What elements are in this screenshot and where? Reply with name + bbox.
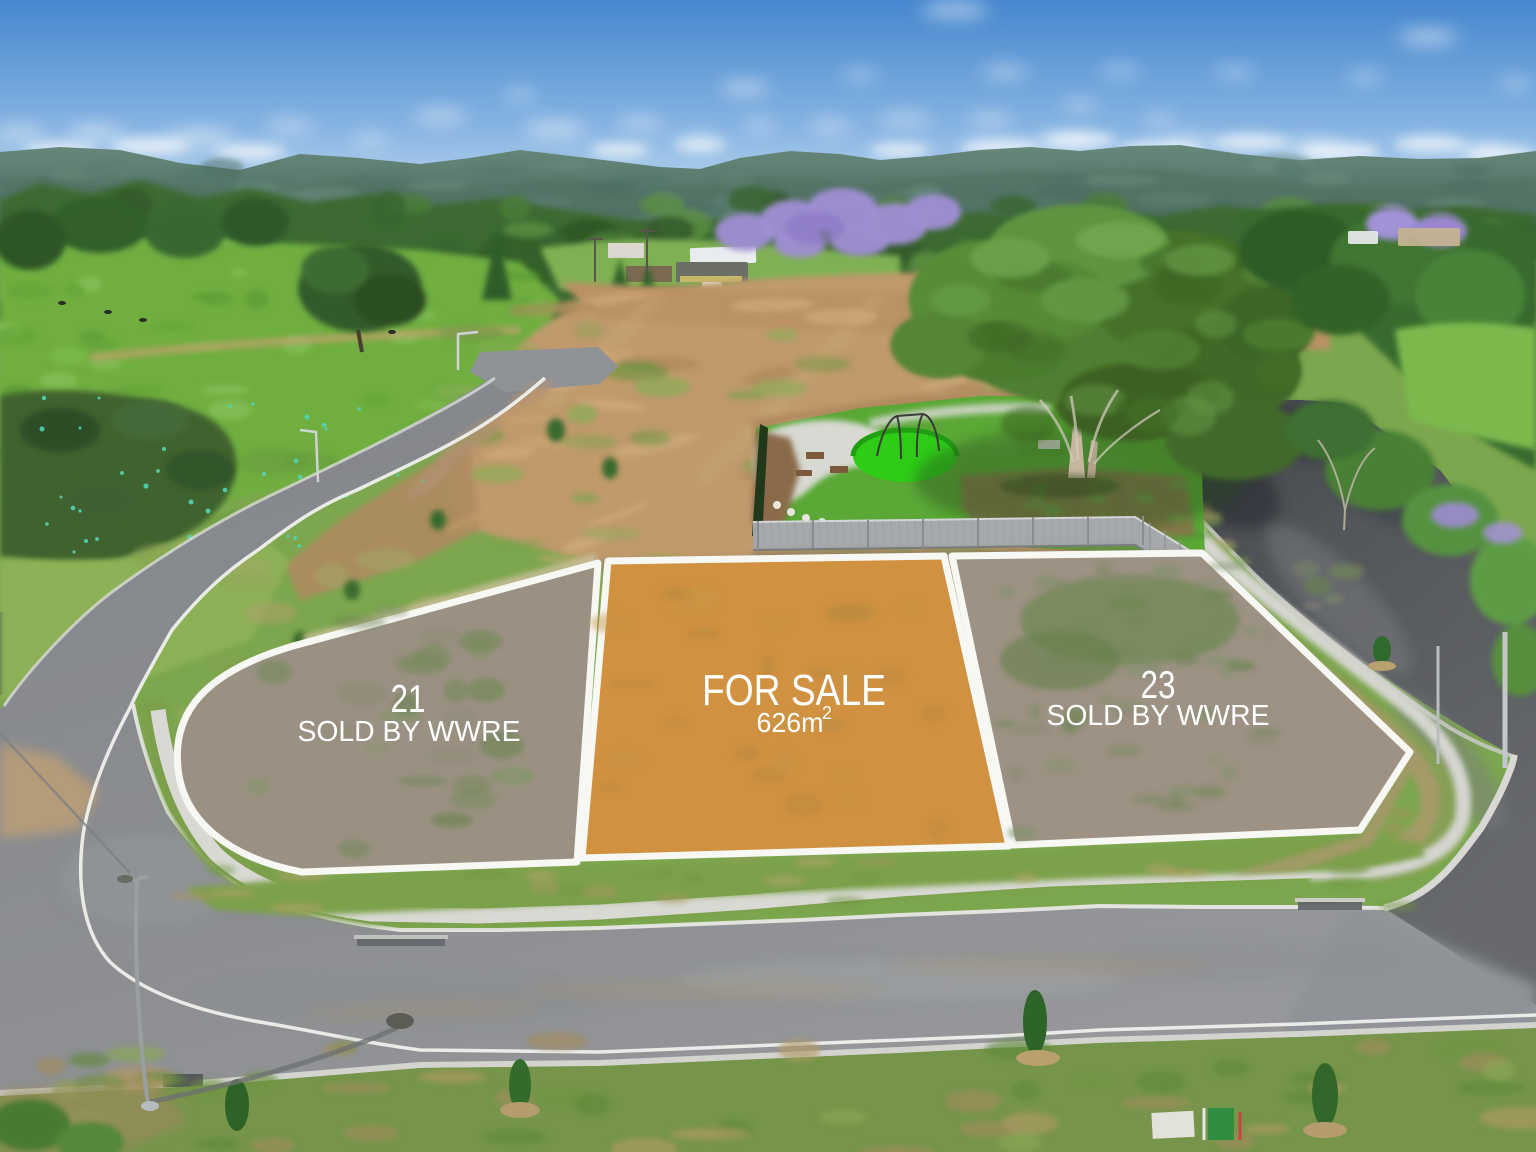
svg-text:SOLD BY WWRE: SOLD BY WWRE	[298, 716, 521, 748]
svg-text:21: 21	[391, 678, 426, 721]
svg-text:SOLD BY WWRE: SOLD BY WWRE	[1047, 700, 1270, 732]
svg-text:626m: 626m	[757, 707, 824, 738]
svg-text:2: 2	[822, 703, 832, 723]
